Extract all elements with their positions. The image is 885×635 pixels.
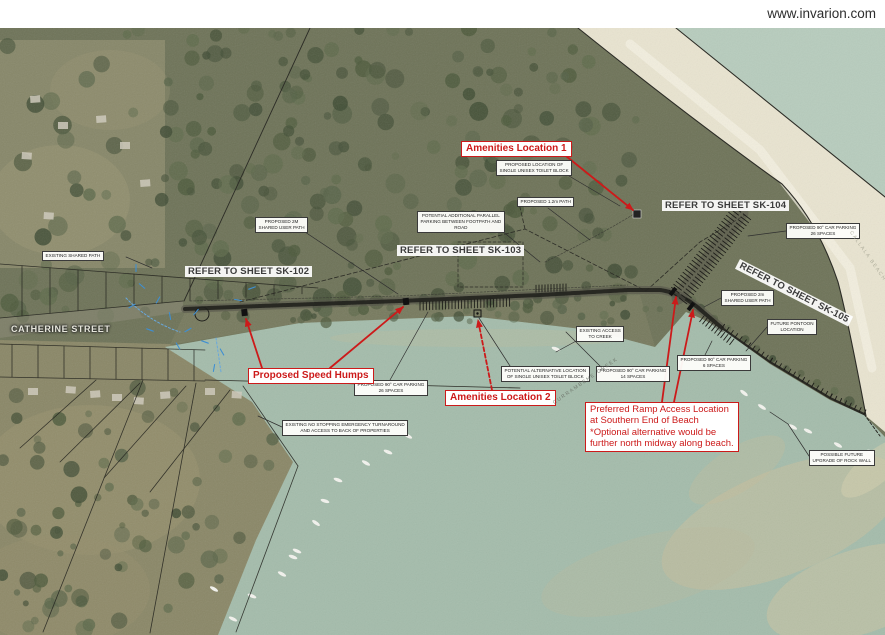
proposed-90-car-parking-6-spaces: PROPOSED 90° CAR PARKING 6 SPACES — [677, 355, 751, 371]
invarion-watermark: www.invarion.com — [767, 6, 876, 21]
existing-access-to-creek: EXISTING ACCESS TO CREEK — [576, 326, 624, 342]
proposed-1-2m-path: PROPOSED 1.2m PATH — [517, 197, 574, 207]
potential-alternative-toilet-block: POTENTIAL ALTERNATIVE LOCATION OF SINGLE… — [501, 366, 590, 382]
street-label-catherine: CATHERINE STREET — [11, 324, 110, 334]
potential-additional-parallel-parking: POTENTIAL ADDITIONAL PARALLEL PARKING BE… — [417, 211, 505, 233]
proposed-speed-humps: Proposed Speed Humps — [248, 368, 374, 384]
refer-sheet-sk103: REFER TO SHEET SK-103 — [397, 245, 524, 256]
future-pontoon-location: FUTURE PONTOON LOCATION — [767, 319, 817, 335]
proposed-2m-shared-user-path-east: PROPOSED 2m SHARED USER PATH — [721, 290, 774, 306]
top-bar: www.invarion.com — [0, 0, 885, 28]
preferred-ramp-access: Preferred Ramp Access Location at Southe… — [585, 402, 739, 452]
annotation-labels: EXISTING SHARED PATHPROPOSED 2M SHARED U… — [0, 0, 885, 635]
existing-shared-path: EXISTING SHARED PATH — [42, 251, 104, 261]
refer-sheet-sk102: REFER TO SHEET SK-102 — [185, 266, 312, 277]
proposed-90-car-parking-26-spaces-east: PROPOSED 90° CAR PARKING 26 SPACES — [786, 223, 860, 239]
existing-no-stopping-turnaround: EXISTING NO STOPPING EMERGENCY TURNAROUN… — [282, 420, 408, 436]
site-plan-screenshot: EXISTING SHARED PATHPROPOSED 2M SHARED U… — [0, 0, 885, 635]
proposed-location-single-unisex-toilet-block: PROPOSED LOCATION OF SINGLE UNISEX TOILE… — [496, 160, 572, 176]
refer-sheet-sk104: REFER TO SHEET SK-104 — [662, 200, 789, 211]
possible-future-upgrade-rock-wall: POSSIBLE FUTURE UPGRADE OF ROCK WALL — [809, 450, 875, 466]
beach-name: CALLALA BEACH — [848, 230, 885, 282]
amenities-location-2: Amenities Location 2 — [445, 390, 556, 406]
proposed-2m-shared-user-path-west: PROPOSED 2M SHARED USER PATH — [255, 217, 308, 233]
amenities-location-1: Amenities Location 1 — [461, 141, 572, 157]
